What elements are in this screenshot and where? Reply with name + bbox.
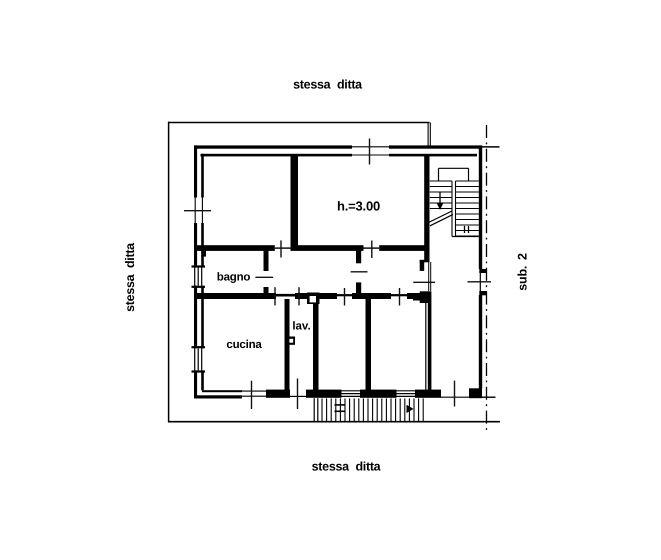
svg-text:h.=3.00: h.=3.00 bbox=[337, 199, 380, 214]
svg-text:cucina: cucina bbox=[226, 339, 262, 351]
svg-text:sub. 2: sub. 2 bbox=[516, 253, 530, 291]
svg-text:lav.: lav. bbox=[292, 321, 310, 333]
svg-text:bagno: bagno bbox=[217, 272, 251, 284]
svg-text:stessa ditta: stessa ditta bbox=[312, 460, 382, 474]
svg-text:stessa ditta: stessa ditta bbox=[293, 78, 363, 92]
svg-text:stessa ditta: stessa ditta bbox=[123, 242, 137, 312]
